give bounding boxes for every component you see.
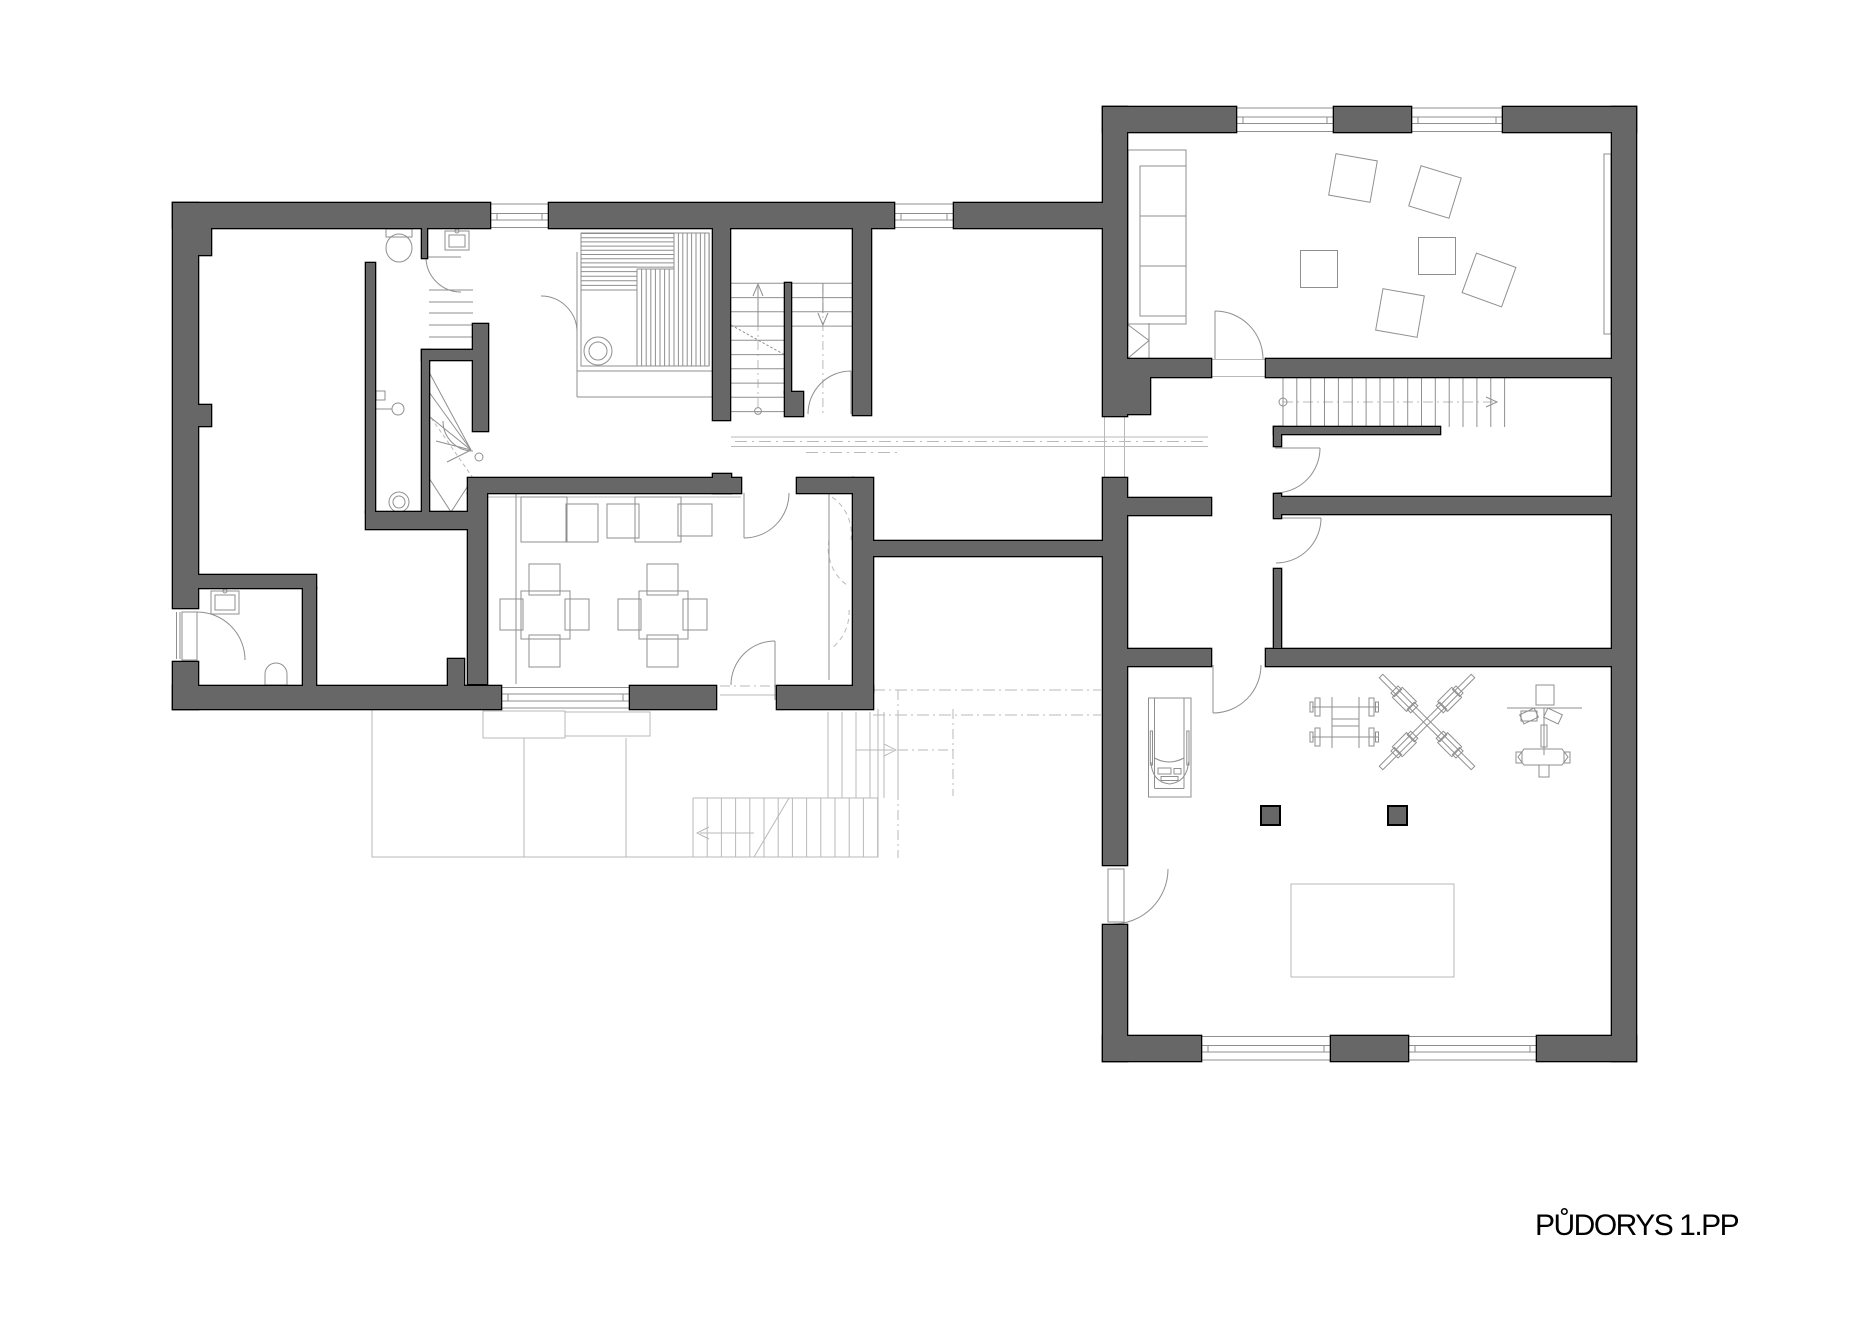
- svg-text:PŮDORYS 1.PP: PŮDORYS 1.PP: [1535, 1208, 1739, 1242]
